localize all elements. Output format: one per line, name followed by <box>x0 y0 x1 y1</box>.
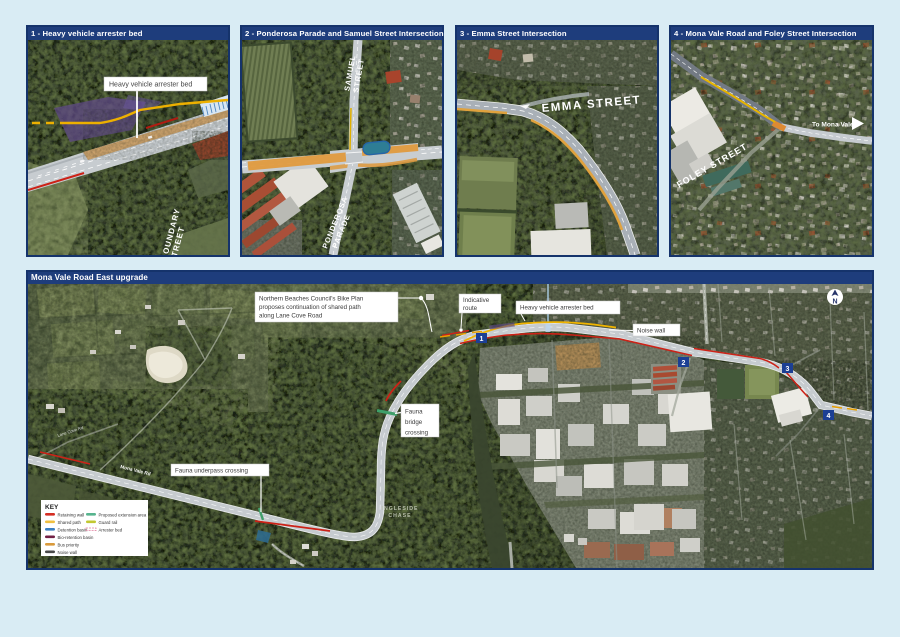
svg-text:bridge: bridge <box>405 419 423 426</box>
svg-text:2: 2 <box>682 360 686 367</box>
svg-text:Heavy vehicle arrester bed: Heavy vehicle arrester bed <box>520 305 594 312</box>
svg-text:Indicative: Indicative <box>463 297 490 304</box>
svg-text:along Lane Cove Road: along Lane Cove Road <box>259 313 323 320</box>
svg-text:KEY: KEY <box>45 504 59 511</box>
svg-text:route: route <box>463 305 478 312</box>
svg-text:CHASE: CHASE <box>388 513 411 519</box>
svg-text:Proposed extension area: Proposed extension area <box>99 513 147 518</box>
svg-text:Retaining wall: Retaining wall <box>58 513 85 518</box>
svg-text:Bus priority: Bus priority <box>58 543 80 548</box>
svg-text:Fauna underpass crossing: Fauna underpass crossing <box>175 468 248 475</box>
svg-text:Noise wall: Noise wall <box>637 328 665 335</box>
svg-text:INGLESIDE: INGLESIDE <box>382 506 419 512</box>
svg-text:Bio-retention basin: Bio-retention basin <box>58 535 94 540</box>
svg-text:crossing: crossing <box>405 430 429 437</box>
svg-text:3: 3 <box>786 366 790 373</box>
svg-text:Guard rail: Guard rail <box>99 520 118 525</box>
svg-text:Northern Beaches Council's Bik: Northern Beaches Council's Bike Plan <box>259 296 364 303</box>
svg-text:Noise wall: Noise wall <box>58 550 78 555</box>
svg-text:1: 1 <box>480 336 484 343</box>
svg-text:Heavy vehicle arrester bed: Heavy vehicle arrester bed <box>109 82 192 89</box>
svg-text:proposes continuation of share: proposes continuation of shared path <box>259 304 361 311</box>
svg-text:Detention basin: Detention basin <box>58 528 88 533</box>
svg-text:Arrester bed: Arrester bed <box>99 528 123 533</box>
svg-text:To Mona Vale: To Mona Vale <box>812 122 854 129</box>
svg-text:4: 4 <box>827 413 831 420</box>
svg-text:Fauna: Fauna <box>405 409 423 416</box>
svg-text:N: N <box>832 299 837 306</box>
svg-text:Shared path: Shared path <box>58 520 82 525</box>
